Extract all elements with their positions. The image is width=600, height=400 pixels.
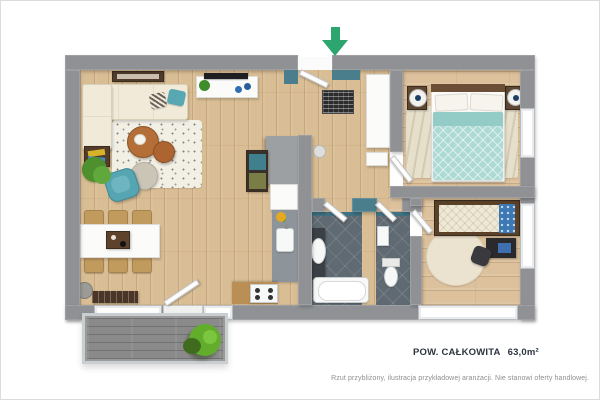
- wall-hall-master: [390, 70, 403, 152]
- balcony-bush-light: [203, 330, 217, 344]
- balcony-railing: [82, 313, 228, 364]
- outer-wall-top-right: [332, 55, 535, 70]
- balcony-bush-dark: [183, 338, 201, 354]
- outer-wall-left: [65, 70, 80, 320]
- tv-screen: [204, 73, 248, 79]
- sideboard-plant: [199, 80, 210, 91]
- kids-pillow-blue: [499, 204, 515, 233]
- entrance-teal-accent-left: [284, 70, 298, 84]
- wall-master-kids: [390, 186, 535, 198]
- potted-plant-living-leaves: [93, 166, 111, 184]
- bedside-lamp-left: [409, 89, 427, 107]
- hall-vase: [313, 145, 326, 158]
- hall-wardrobe: [366, 74, 390, 148]
- floor-plan-image: POW. CAŁKOWITA63,0m² Rzut przybliżony, i…: [0, 0, 600, 400]
- entrance-teal-accent-right: [332, 70, 360, 80]
- single-bed-frame: [434, 200, 520, 236]
- stove-cooktop: [250, 284, 278, 303]
- entrance-threshold: [298, 57, 332, 70]
- bed-pillow-left: [435, 93, 469, 112]
- kitchen-faucet: [284, 224, 289, 229]
- hall-shoe-bench: [366, 152, 388, 166]
- coffee-table-small: [153, 141, 175, 163]
- toilet-bowl: [384, 266, 398, 287]
- wall-kids-left-lower: [410, 236, 422, 305]
- dining-table-tray: [106, 231, 130, 249]
- dining-chair: [108, 257, 128, 273]
- wall-picture: [112, 71, 164, 82]
- dining-chair: [84, 257, 104, 273]
- radiator-living: [92, 291, 138, 303]
- bathtub: [313, 277, 369, 303]
- deco-bowl-2: [244, 83, 251, 90]
- window-master-right: [520, 108, 535, 158]
- outer-wall-top-left: [65, 55, 298, 70]
- wc-sink: [377, 226, 389, 246]
- fridge: [270, 184, 298, 210]
- total-area-annotation: POW. CAŁKOWITA63,0m²: [413, 347, 539, 358]
- wall-kids-left-upper: [410, 198, 422, 206]
- kitchen-flowers: [276, 212, 286, 222]
- window-kids-right: [520, 203, 535, 269]
- total-area-value: 63,0m²: [508, 347, 539, 358]
- leaning-art-frames: [246, 150, 268, 192]
- bathroom-sink: [311, 238, 326, 264]
- dining-chair: [132, 257, 152, 273]
- wall-hall-bathroom-teal: [352, 198, 377, 212]
- sofa-sectional-left: [82, 84, 112, 150]
- entrance-doormat: [322, 90, 354, 114]
- double-bed-headboard: [431, 84, 505, 92]
- bed-pillow-right: [470, 93, 504, 112]
- bed-blanket-fold: [433, 112, 503, 126]
- window-kids-bottom: [418, 305, 518, 320]
- disclaimer-text: Rzut przybliżony, ilustracja przykładowe…: [331, 375, 589, 382]
- kitchen-tall-cabinet: [266, 136, 298, 184]
- deco-bowl-1: [235, 86, 242, 93]
- sofa-pillow-teal: [167, 88, 187, 106]
- laptop: [498, 243, 511, 253]
- wall-kitchen-bathroom: [298, 135, 312, 305]
- kitchen-sink: [276, 228, 294, 252]
- total-area-label: POW. CAŁKOWITA: [413, 347, 501, 358]
